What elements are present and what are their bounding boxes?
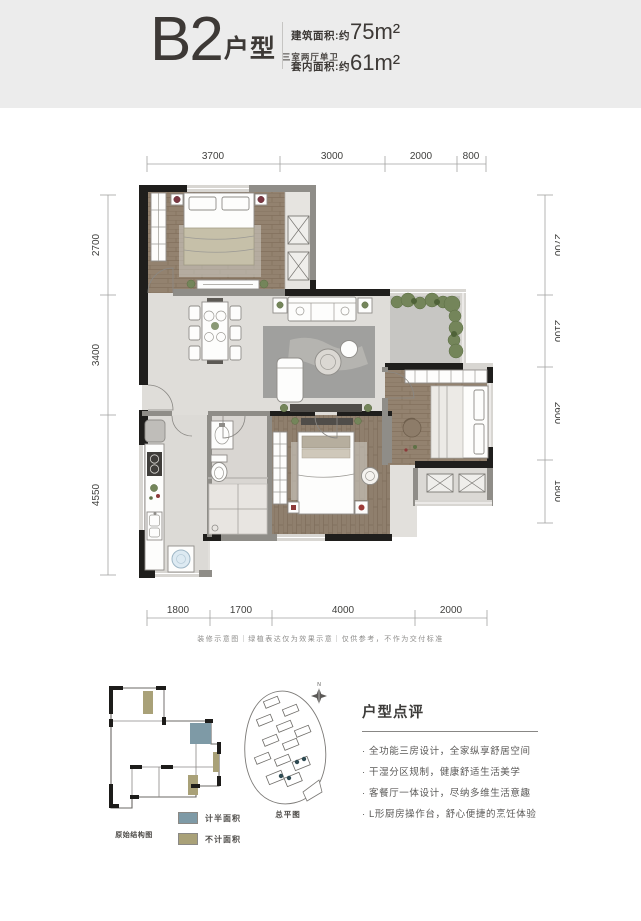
dim-right-4: 1800 bbox=[552, 480, 560, 503]
legend-excluded-region-1 bbox=[143, 691, 153, 714]
legend: 计半面积 不计面积 bbox=[178, 812, 241, 845]
review-bullet-1: · 全功能三房设计，全家纵享舒居空间 bbox=[362, 741, 552, 762]
unit-code: B2 bbox=[150, 14, 222, 66]
dimension-lines-bottom: 1800 1700 4000 2000 bbox=[147, 605, 487, 626]
site-plan-label: 总平图 bbox=[233, 809, 343, 820]
net-area-value: 61m² bbox=[350, 50, 400, 76]
dim-right-2: 2100 bbox=[552, 320, 560, 343]
legend-item-half-area: 计半面积 bbox=[178, 812, 241, 824]
gross-area-label: 建筑面积:约 bbox=[291, 28, 350, 43]
review-list: · 全功能三房设计，全家纵享舒居空间 · 干湿分区规制，健康舒适生活美学 · 客… bbox=[362, 741, 552, 825]
compass-north-label: N bbox=[317, 682, 321, 688]
review-bullet-2: · 干湿分区规制，健康舒适生活美学 bbox=[362, 762, 552, 783]
structural-mini-plan bbox=[103, 680, 233, 828]
half-area-swatch bbox=[178, 812, 198, 824]
dimension-lines-left: 2700 3400 4550 bbox=[91, 195, 116, 575]
dim-top-3: 2000 bbox=[410, 151, 433, 162]
dim-bottom-1: 1800 bbox=[167, 605, 190, 616]
floor-plan-page: B2 户型 三室两厅单卫 建筑面积:约 75m² 套内面积:约 61m² bbox=[0, 0, 641, 921]
dim-right-3: 2600 bbox=[552, 402, 560, 425]
site-plan-map: N bbox=[233, 680, 343, 820]
unit-code-suffix: 户型 bbox=[224, 29, 276, 65]
dim-left-1: 2700 bbox=[91, 233, 102, 256]
dim-left-3: 4550 bbox=[91, 483, 102, 506]
area-info: 建筑面积:约 75m² 套内面积:约 61m² bbox=[291, 19, 400, 76]
dimension-lines-top: 3700 3000 2000 800 bbox=[147, 151, 486, 172]
legend-item-excluded-area: 不计面积 bbox=[178, 833, 241, 845]
dim-bottom-2: 1700 bbox=[230, 605, 253, 616]
legend-half-area-region bbox=[190, 723, 211, 744]
dim-bottom-3: 4000 bbox=[332, 605, 355, 616]
excluded-area-swatch bbox=[178, 833, 198, 845]
review-heading: 户型点评 bbox=[362, 701, 552, 722]
dim-bottom-4: 2000 bbox=[440, 605, 463, 616]
gross-area-value: 75m² bbox=[350, 19, 400, 45]
legend-excluded-region-2 bbox=[213, 752, 219, 772]
excluded-area-label: 不计面积 bbox=[205, 834, 241, 845]
review-bullet-3: · 客餐厅一体设计，尽纳多维生活意趣 bbox=[362, 783, 552, 804]
dimension-lines-right: 2700 2100 2600 1800 bbox=[537, 195, 560, 523]
dim-top-2: 3000 bbox=[321, 151, 344, 162]
compass-icon: N bbox=[311, 682, 327, 704]
gross-area-row: 建筑面积:约 75m² bbox=[291, 19, 400, 45]
header-divider bbox=[282, 22, 283, 69]
disclaimer-text: 装修示意图｜绿植表达仅为效果示意｜仅供参考，不作为交付标准 bbox=[0, 634, 641, 644]
net-area-row: 套内面积:约 61m² bbox=[291, 50, 400, 76]
net-area-label: 套内面积:约 bbox=[291, 59, 350, 74]
dim-right-1: 2700 bbox=[552, 234, 560, 257]
page-header: B2 户型 三室两厅单卫 建筑面积:约 75m² 套内面积:约 61m² bbox=[0, 0, 641, 108]
dim-top-1: 3700 bbox=[202, 151, 225, 162]
dim-top-4: 800 bbox=[463, 151, 480, 162]
review-divider bbox=[362, 731, 538, 732]
dim-left-2: 3400 bbox=[91, 343, 102, 366]
mini-plan-label: 原始结构图 bbox=[103, 830, 165, 840]
unit-review: 户型点评 · 全功能三房设计，全家纵享舒居空间 · 干湿分区规制，健康舒适生活美… bbox=[362, 701, 552, 825]
floor-plan: 3700 3000 2000 800 1800 1700 4000 2000 2… bbox=[85, 130, 560, 665]
review-bullet-4: · L形厨房操作台，舒心便捷的烹饪体验 bbox=[362, 804, 552, 825]
